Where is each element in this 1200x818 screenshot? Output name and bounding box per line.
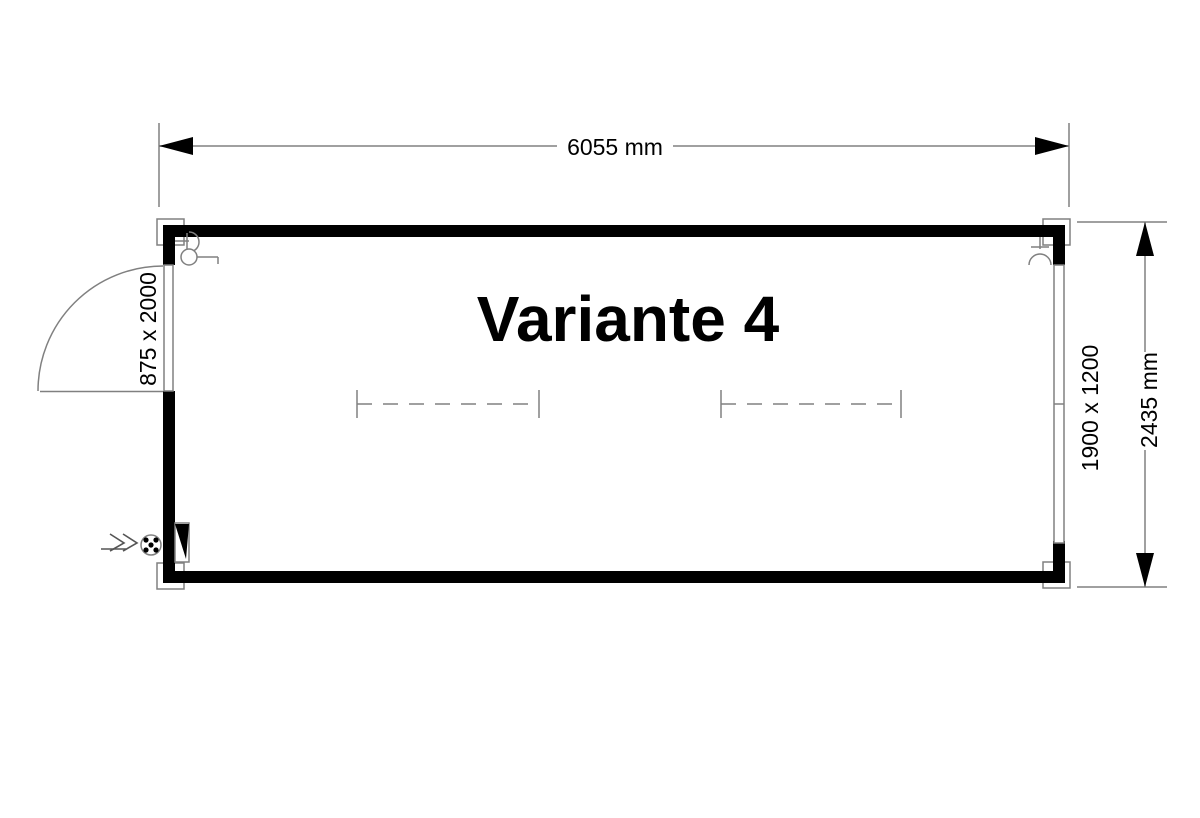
arrow-left-icon [159,137,193,155]
arrow-down-icon [1136,553,1154,587]
left-wall-upper [163,225,175,265]
door-size-label: 875 x 2000 [135,272,161,386]
socket-pin [153,537,158,542]
arrow-up-icon [1136,222,1154,256]
window: 1900 x 1200 [1054,265,1103,543]
socket-pin [143,537,148,542]
cee-socket-icon [141,535,161,555]
switch-body [181,249,197,265]
fluorescent-lamp-icon [721,390,901,418]
height-dimension-label: 2435 mm [1136,352,1162,448]
window-size-label: 1900 x 1200 [1077,345,1103,472]
door: 875 x 2000 [38,265,173,392]
floor-plan-drawing: 6055 mm 2435 mm 875 x 2000 1900 x [0,0,1200,818]
socket-pin [148,542,153,547]
right-wall-lower [1053,541,1065,583]
left-wall-lower [163,391,175,583]
distribution-box-icon [175,523,189,562]
container-walls [163,225,1065,583]
right-wall-upper [1053,225,1065,265]
floor-plan-svg: 6055 mm 2435 mm 875 x 2000 1900 x [0,0,1200,818]
plan-title: Variante 4 [477,283,780,355]
light-switch-icon [181,249,218,265]
arrow-right-icon [1035,137,1069,155]
corner-fittings [157,219,1070,589]
lamp-shade [1029,254,1051,265]
width-dimension-label: 6055 mm [567,134,663,160]
socket-pin [153,547,158,552]
socket-pin [143,547,148,552]
power-feed-icon [101,534,137,551]
door-frame [164,265,173,391]
width-dimension: 6055 mm [159,123,1069,207]
top-wall [163,225,1065,237]
bottom-wall [163,571,1065,583]
fluorescent-lamp-icon [357,390,539,418]
